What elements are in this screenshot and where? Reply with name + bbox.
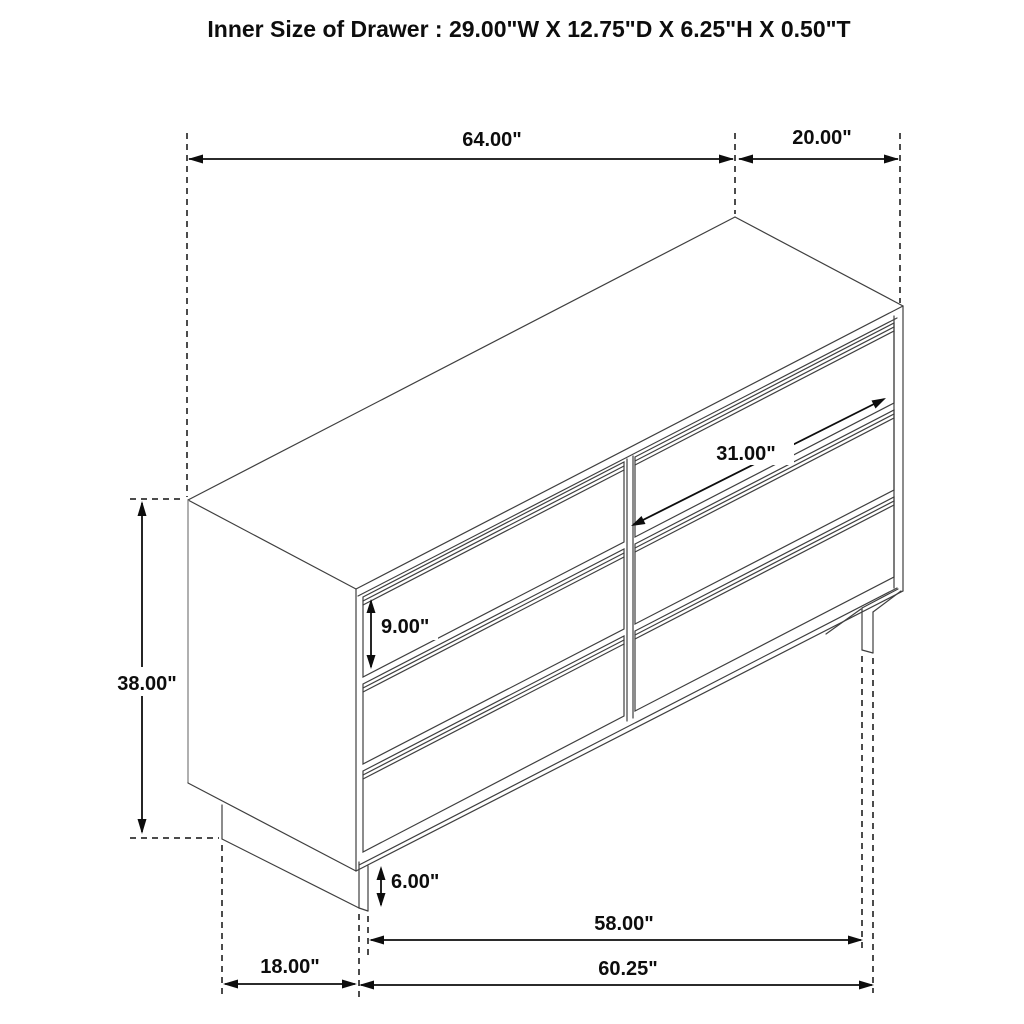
dimension-side-depth: 18.00" xyxy=(223,956,357,989)
dimension-floor-width: 60.25" xyxy=(359,958,874,990)
dimension-base-width: 58.00" xyxy=(369,913,863,945)
top-face xyxy=(188,217,903,589)
dimension-base-height: 6.00" xyxy=(377,866,446,907)
dresser-dimension-diagram: 64.00" 20.00" 38.00" 9.00" 31.00" 6 xyxy=(0,0,1024,1024)
dim-label-top-width: 64.00" xyxy=(462,129,522,151)
page-title: Inner Size of Drawer : 29.00"W X 12.75"D… xyxy=(207,16,850,42)
dimension-drawer-inner: 31.00" xyxy=(631,398,886,526)
extension-lines xyxy=(130,133,900,998)
dim-label-side-depth: 18.00" xyxy=(260,956,320,978)
dimension-overall-height: 38.00" xyxy=(110,501,185,834)
rear-leg xyxy=(826,589,901,653)
dimension-top-depth: 20.00" xyxy=(738,127,899,164)
dim-label-floor-width: 60.25" xyxy=(598,958,658,980)
dim-label-base-width: 58.00" xyxy=(594,913,654,935)
dresser-drawing xyxy=(188,217,903,911)
side-panel xyxy=(188,500,356,871)
dim-label-top-depth: 20.00" xyxy=(792,127,852,149)
dimension-diagram-page: 64.00" 20.00" 38.00" 9.00" 31.00" 6 xyxy=(0,0,1024,1024)
dim-label-drawer-inner: 31.00" xyxy=(716,443,776,465)
front-face-frame xyxy=(356,306,903,871)
dimension-top-width: 64.00" xyxy=(188,129,734,164)
dim-label-base-height: 6.00" xyxy=(391,871,439,893)
dim-label-overall-height: 38.00" xyxy=(117,673,177,695)
dim-label-drawer-height: 9.00" xyxy=(381,616,429,638)
base-plinth xyxy=(222,805,368,911)
